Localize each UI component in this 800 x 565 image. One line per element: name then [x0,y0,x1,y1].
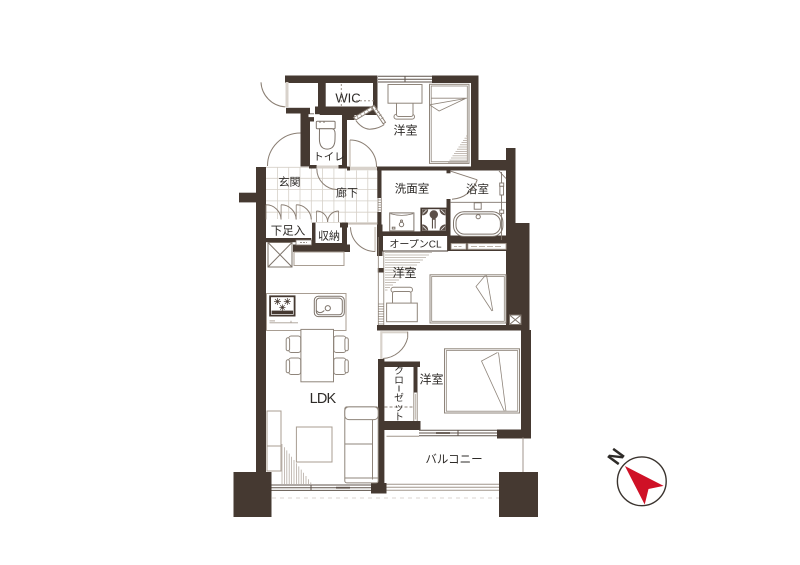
svg-text:洋室: 洋室 [419,372,443,387]
svg-text:オープンCL: オープンCL [389,239,442,251]
svg-text:収納: 収納 [318,230,340,243]
svg-text:バルコニー: バルコニー [425,453,482,466]
svg-text:玄関: 玄関 [279,175,301,189]
svg-text:LDK: LDK [310,391,337,407]
svg-text:洗面室: 洗面室 [395,182,430,196]
svg-text:WIC: WIC [335,91,360,106]
svg-text:廊下: 廊下 [336,186,358,200]
svg-text:クロゼット: クロゼット [394,365,404,423]
svg-text:トイレ: トイレ [313,151,345,163]
svg-text:洋室: 洋室 [392,265,416,280]
svg-text:下足入: 下足入 [271,225,306,238]
svg-text:浴室: 浴室 [466,182,489,196]
svg-text:洋室: 洋室 [393,123,417,138]
